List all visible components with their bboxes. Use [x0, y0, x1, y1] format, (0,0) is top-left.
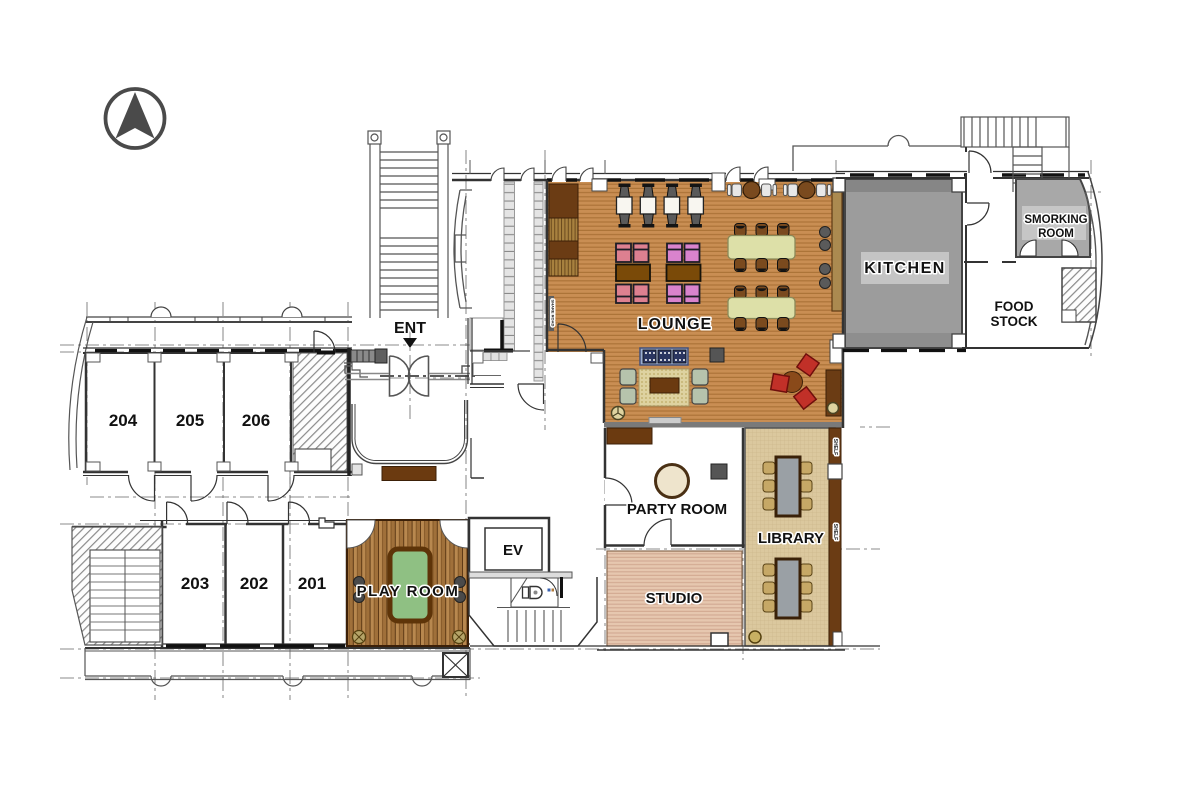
- svg-text:KITCHEN: KITCHEN: [864, 260, 946, 277]
- svg-text:SHELF: SHELF: [832, 439, 838, 455]
- svg-text:EV: EV: [503, 542, 523, 559]
- svg-text:LOUNGE: LOUNGE: [638, 316, 712, 333]
- svg-text:SHARE ROAD: SHARE ROAD: [551, 300, 556, 327]
- svg-text:SHELF: SHELF: [832, 524, 838, 540]
- svg-text:202: 202: [240, 574, 268, 593]
- svg-text:204: 204: [109, 411, 138, 430]
- svg-text:ROOM: ROOM: [1038, 228, 1074, 240]
- svg-text:LIBRARY: LIBRARY: [758, 530, 824, 547]
- svg-text:STUDIO: STUDIO: [646, 590, 703, 607]
- svg-text:206: 206: [242, 411, 270, 430]
- svg-text:203: 203: [181, 574, 209, 593]
- svg-text:201: 201: [298, 574, 326, 593]
- svg-text:ENT: ENT: [394, 320, 426, 337]
- svg-text:PLAY ROOM: PLAY ROOM: [357, 583, 460, 600]
- svg-text:SMORKING: SMORKING: [1024, 214, 1087, 226]
- svg-text:PARTY ROOM: PARTY ROOM: [627, 501, 727, 518]
- svg-text:STOCK: STOCK: [990, 314, 1037, 329]
- svg-text:FOOD: FOOD: [995, 299, 1034, 314]
- svg-text:205: 205: [176, 411, 204, 430]
